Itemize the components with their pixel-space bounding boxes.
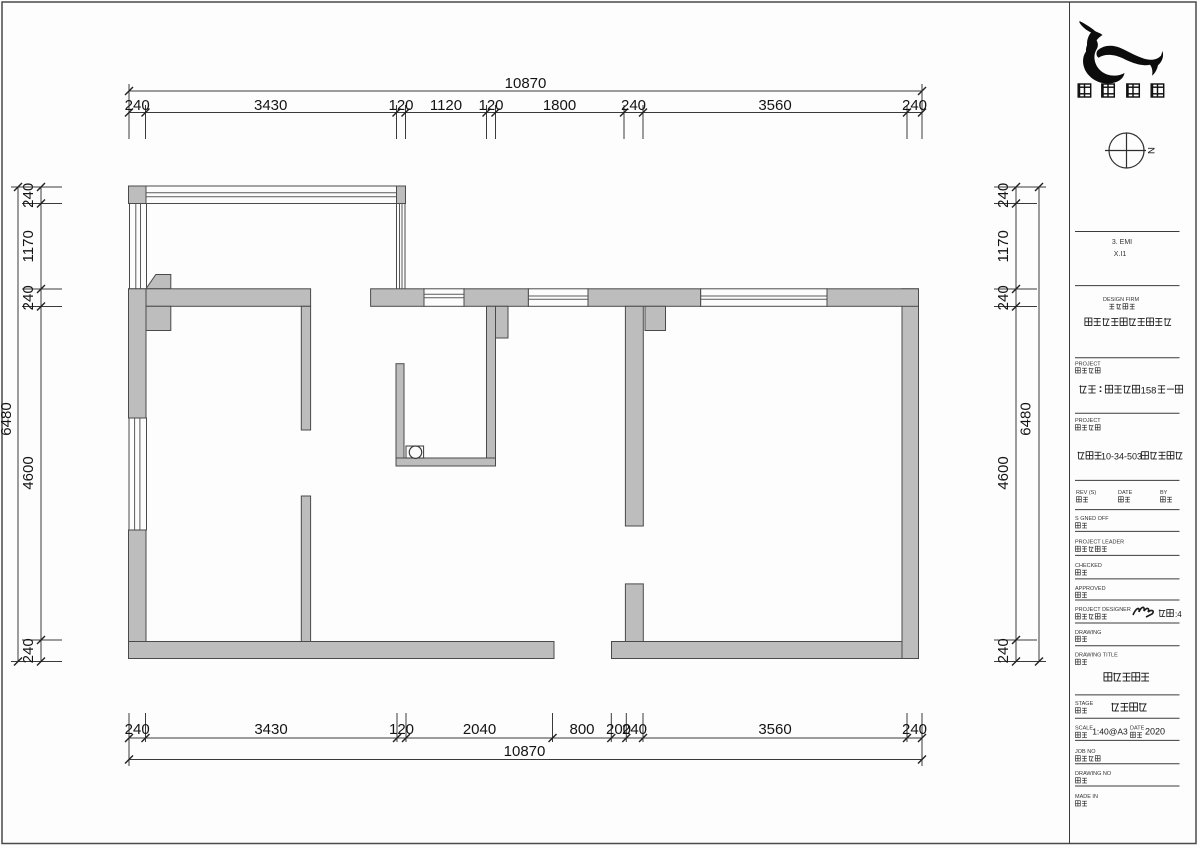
svg-text:MADE IN: MADE IN bbox=[1075, 794, 1098, 800]
svg-text:PROJECT DESIGNER: PROJECT DESIGNER bbox=[1075, 607, 1131, 613]
svg-text:6480: 6480 bbox=[1018, 402, 1035, 435]
svg-text:1170: 1170 bbox=[995, 230, 1012, 262]
svg-text:SCALE: SCALE bbox=[1075, 726, 1093, 732]
svg-text:REV (S): REV (S) bbox=[1076, 490, 1096, 496]
svg-text:1120: 1120 bbox=[430, 97, 462, 114]
svg-text:1:40@A3: 1:40@A3 bbox=[1092, 727, 1128, 737]
svg-text:CHECKED: CHECKED bbox=[1075, 563, 1102, 569]
svg-text:S GNED OFF: S GNED OFF bbox=[1075, 516, 1109, 522]
svg-text:2040: 2040 bbox=[463, 721, 496, 738]
svg-text:240: 240 bbox=[995, 285, 1012, 310]
svg-text:JOB NO: JOB NO bbox=[1075, 749, 1096, 755]
svg-text:DRAWING NO: DRAWING NO bbox=[1075, 771, 1112, 777]
svg-text:DESIGN FIRM: DESIGN FIRM bbox=[1103, 297, 1139, 303]
svg-text:PROJECT: PROJECT bbox=[1075, 362, 1101, 368]
svg-text:BY: BY bbox=[1160, 490, 1168, 496]
svg-text:6480: 6480 bbox=[0, 402, 15, 435]
svg-text:3430: 3430 bbox=[254, 721, 287, 738]
svg-text:3560: 3560 bbox=[758, 721, 791, 738]
svg-text:1170: 1170 bbox=[20, 230, 37, 262]
svg-text:120: 120 bbox=[388, 97, 413, 114]
svg-text:DRAWING: DRAWING bbox=[1075, 630, 1101, 636]
svg-text:3. EMI: 3. EMI bbox=[1112, 239, 1132, 246]
svg-text:DATE: DATE bbox=[1130, 726, 1145, 732]
svg-text:10870: 10870 bbox=[504, 743, 546, 760]
svg-text:4600: 4600 bbox=[995, 456, 1012, 489]
svg-text:X.I1: X.I1 bbox=[1114, 251, 1127, 258]
svg-text:240: 240 bbox=[125, 97, 150, 114]
svg-text:10870: 10870 bbox=[505, 75, 547, 92]
svg-text:240: 240 bbox=[20, 183, 37, 208]
svg-text:240: 240 bbox=[995, 638, 1012, 663]
svg-text:STAGE: STAGE bbox=[1075, 701, 1094, 707]
svg-text:APPROVED: APPROVED bbox=[1075, 586, 1106, 592]
svg-text:240: 240 bbox=[621, 97, 646, 114]
svg-text:240: 240 bbox=[622, 721, 647, 738]
svg-text:240: 240 bbox=[902, 97, 927, 114]
svg-text:240: 240 bbox=[20, 638, 37, 663]
svg-text:240: 240 bbox=[20, 285, 37, 310]
svg-text:DRAWING TITLE: DRAWING TITLE bbox=[1075, 653, 1118, 659]
svg-text:240: 240 bbox=[902, 721, 927, 738]
svg-text:PROJECT: PROJECT bbox=[1075, 418, 1101, 424]
svg-text:158: 158 bbox=[1141, 386, 1157, 397]
svg-text:240: 240 bbox=[125, 721, 150, 738]
svg-text:4600: 4600 bbox=[20, 456, 37, 489]
svg-text:N: N bbox=[1145, 147, 1156, 154]
svg-text:DATE: DATE bbox=[1118, 490, 1133, 496]
svg-text:1800: 1800 bbox=[543, 97, 576, 114]
svg-text:120: 120 bbox=[389, 721, 414, 738]
svg-text:120: 120 bbox=[478, 97, 503, 114]
svg-text:3430: 3430 bbox=[254, 97, 287, 114]
svg-text:240: 240 bbox=[995, 183, 1012, 208]
svg-text::4: :4 bbox=[1175, 610, 1182, 619]
svg-text:2020: 2020 bbox=[1145, 727, 1165, 737]
svg-text:3560: 3560 bbox=[758, 97, 791, 114]
svg-text:PROJECT LEADER: PROJECT LEADER bbox=[1075, 540, 1124, 546]
svg-text:800: 800 bbox=[569, 721, 594, 738]
svg-text:10-34-503: 10-34-503 bbox=[1101, 452, 1142, 462]
